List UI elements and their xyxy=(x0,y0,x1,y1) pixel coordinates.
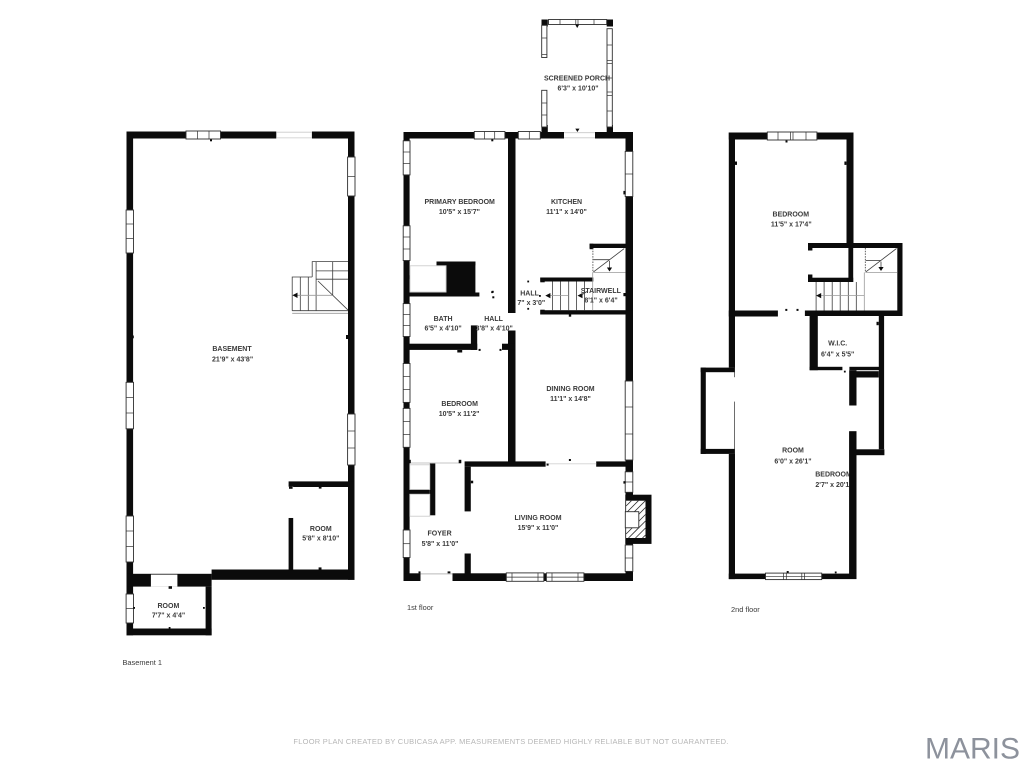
svg-text:W.I.C.: W.I.C. xyxy=(828,341,847,348)
svg-text:DINING ROOM: DINING ROOM xyxy=(546,386,594,393)
svg-text:Basement 1: Basement 1 xyxy=(123,658,162,667)
svg-text:ROOM: ROOM xyxy=(782,447,804,454)
svg-text:11'1" x 14'8": 11'1" x 14'8" xyxy=(550,396,591,403)
svg-text:7" x 3'0": 7" x 3'0" xyxy=(517,300,545,307)
svg-text:11'1" x 14'0": 11'1" x 14'0" xyxy=(546,209,587,216)
svg-text:10'5" x 15'7": 10'5" x 15'7" xyxy=(439,209,480,216)
svg-text:BEDROOM: BEDROOM xyxy=(773,211,810,218)
svg-text:6'0" x 26'1": 6'0" x 26'1" xyxy=(774,459,811,466)
svg-text:BASEMENT: BASEMENT xyxy=(212,346,252,353)
svg-text:MARIS: MARIS xyxy=(925,733,1020,766)
svg-text:5'8" x 11'0": 5'8" x 11'0" xyxy=(422,541,459,548)
svg-text:FLOOR PLAN CREATED BY CUBICASA: FLOOR PLAN CREATED BY CUBICASA APP. MEAS… xyxy=(293,737,728,746)
svg-text:11'5" x 17'4": 11'5" x 17'4" xyxy=(771,221,812,228)
svg-text:BATH: BATH xyxy=(434,316,453,323)
svg-text:HALL: HALL xyxy=(484,316,503,323)
svg-text:21'9" x 43'8": 21'9" x 43'8" xyxy=(212,357,253,364)
svg-text:2'7" x 20'1": 2'7" x 20'1" xyxy=(815,482,852,489)
svg-text:ROOM: ROOM xyxy=(310,526,332,533)
svg-text:STAIRWELL: STAIRWELL xyxy=(581,288,622,295)
svg-text:6'3" x 10'10": 6'3" x 10'10" xyxy=(557,86,598,93)
svg-text:6'5" x 4'10": 6'5" x 4'10" xyxy=(424,326,461,333)
svg-text:BEDROOM: BEDROOM xyxy=(441,401,478,408)
svg-text:LIVING ROOM: LIVING ROOM xyxy=(514,515,561,522)
svg-text:SCREENED PORCH: SCREENED PORCH xyxy=(544,76,610,83)
svg-text:FOYER: FOYER xyxy=(428,531,452,538)
svg-text:KITCHEN: KITCHEN xyxy=(551,199,582,206)
svg-text:7'7" x 4'4": 7'7" x 4'4" xyxy=(152,613,185,620)
svg-text:6'4" x 5'5": 6'4" x 5'5" xyxy=(821,351,854,358)
svg-text:1st floor: 1st floor xyxy=(407,603,434,612)
svg-text:10'5" x 11'2": 10'5" x 11'2" xyxy=(439,411,480,418)
svg-text:5'8" x 8'10": 5'8" x 8'10" xyxy=(302,535,339,542)
svg-text:8'1" x 6'4": 8'1" x 6'4" xyxy=(584,298,617,305)
svg-text:2nd floor: 2nd floor xyxy=(731,605,760,614)
svg-text:ROOM: ROOM xyxy=(158,603,180,610)
svg-text:PRIMARY BEDROOM: PRIMARY BEDROOM xyxy=(424,199,495,206)
svg-text:15'9" x 11'0": 15'9" x 11'0" xyxy=(518,525,559,532)
svg-text:3'8" x 4'10": 3'8" x 4'10" xyxy=(476,326,513,333)
svg-text:BEDROOM: BEDROOM xyxy=(815,472,852,479)
svg-text:HALL: HALL xyxy=(520,291,539,298)
